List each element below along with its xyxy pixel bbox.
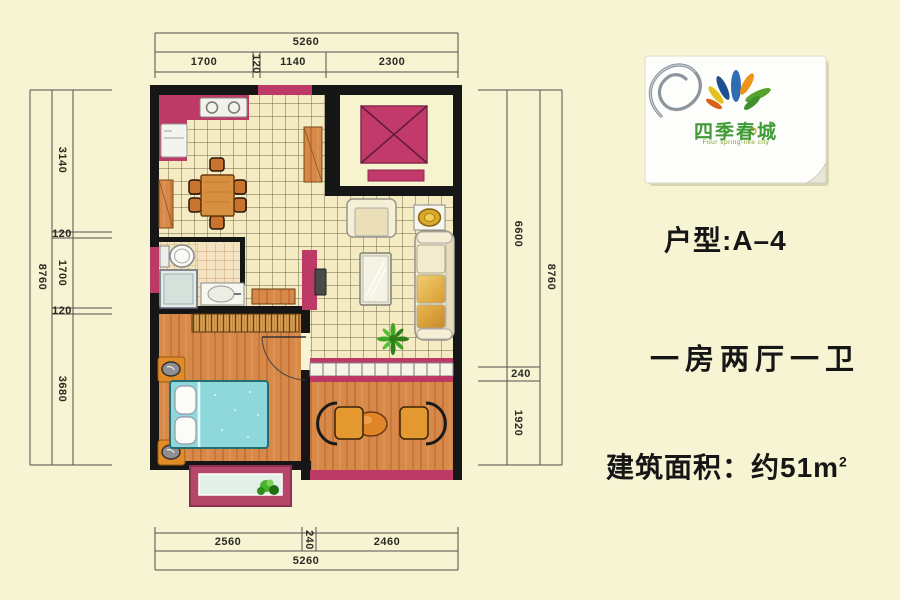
- bathroom-window: [150, 247, 159, 293]
- lamp: [162, 362, 180, 376]
- balcony-rail: [310, 470, 453, 480]
- toilet: [170, 245, 194, 267]
- dim-left-seg3: 1700: [54, 243, 70, 303]
- dim-left-total: 8760: [34, 247, 50, 307]
- dim-right-total: 8760: [543, 247, 559, 307]
- washbasin: [208, 286, 234, 302]
- dim-top-seg3: 1140: [263, 54, 323, 70]
- wardrobe: [192, 314, 299, 332]
- pillow: [175, 386, 196, 414]
- layout-label: 一房两厅一卫: [650, 336, 860, 378]
- hall-bench: [252, 289, 295, 304]
- tv: [315, 269, 326, 295]
- dining-table: [201, 175, 234, 216]
- dim-top-total: 5260: [276, 34, 336, 50]
- dim-bottom-seg3: 2460: [357, 534, 417, 550]
- dim-right-seg2: 240: [491, 366, 551, 382]
- dim-left-seg2: 120: [32, 226, 92, 242]
- dim-bottom-seg1: 2560: [198, 534, 258, 550]
- logo-tagline: Four spring-like city: [686, 139, 786, 146]
- floorplan-page: 5260 1700 120 1140 2300 2560 240 2460 52…: [0, 0, 900, 600]
- floorplan-graphic: [0, 0, 900, 600]
- area-text: 建筑面积：约51m: [606, 452, 839, 483]
- area-label: 建筑面积：约51m2: [606, 446, 848, 486]
- dim-left-seg5: 3680: [54, 359, 70, 419]
- dim-right-seg3: 1920: [510, 393, 526, 453]
- air-shaft: [361, 106, 427, 181]
- dim-bottom-total: 5260: [276, 553, 336, 569]
- unit-type-label: 户型:A–4: [664, 219, 787, 259]
- kitchen-window: [258, 85, 312, 95]
- dim-left-seg4: 120: [32, 303, 92, 319]
- toilet-tank: [160, 246, 169, 267]
- living-balcony-window: [310, 363, 453, 376]
- area-exponent: 2: [839, 454, 848, 470]
- dim-left-seg1: 3140: [54, 130, 70, 190]
- pillow: [175, 417, 196, 444]
- dim-top-seg1: 1700: [174, 54, 234, 70]
- balcony-chair: [400, 407, 428, 439]
- balcony-chair: [335, 407, 363, 439]
- dim-top-seg2: 120: [248, 34, 264, 94]
- dim-right-seg1: 6600: [510, 204, 526, 264]
- dim-top-seg4: 2300: [362, 54, 422, 70]
- fridge: [161, 124, 187, 157]
